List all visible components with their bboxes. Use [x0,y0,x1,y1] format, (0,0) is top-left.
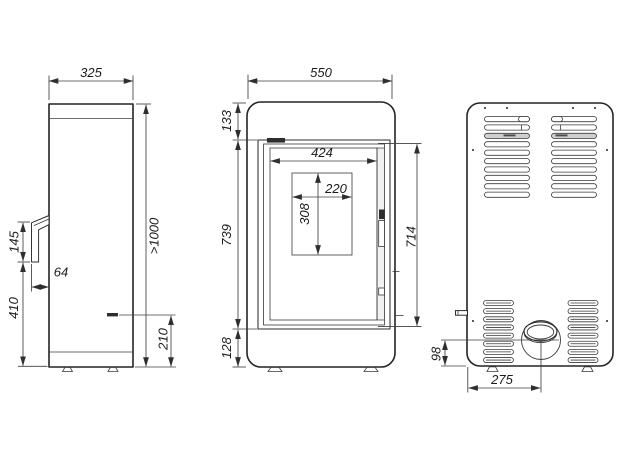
dim-handle-to-floor-label: 410 [6,296,21,318]
dim-glass-height-right-label: 714 [404,226,419,248]
foot [63,367,73,371]
back-view: 98 275 [429,103,614,393]
dim-glass-width-label: 424 [311,145,333,160]
dim-min-clearance-label: >1000 [147,217,162,254]
foot [268,367,282,371]
door-hinge [379,288,385,295]
dim-side-width-label: 325 [80,65,102,80]
rear-outlet-mark [107,313,118,316]
door-glass [270,148,377,320]
foot [364,367,378,371]
door-lock [379,210,385,220]
dim-flue-height-label: 98 [429,346,444,361]
dim-glass-to-floor: 128 [219,330,246,367]
dim-window-width-label: 220 [324,181,347,196]
dim-window-height: 308 [297,174,318,255]
dim-outlet-height: 210 [119,315,176,367]
front-view: 550 133 739 128 424 220 [219,65,422,372]
side-stub-pipe [456,311,468,316]
foot [582,367,593,372]
dim-glass-to-floor-label: 128 [219,336,234,358]
dim-handle-depth: 64 [32,264,69,292]
door-handle-front [379,221,385,247]
dim-window-width: 220 [293,181,352,197]
side-view: 325 >1000 210 145 410 [6,65,176,372]
dim-window-height-label: 308 [297,202,312,224]
technical-drawing: 325 >1000 210 145 410 [0,0,624,460]
dim-front-width-label: 550 [310,65,332,80]
dim-glass-width: 424 [271,145,377,161]
dim-min-clearance: >1000 [136,104,162,367]
foot [487,367,498,372]
dim-front-width: 550 [248,65,392,99]
dim-top-to-glass: 133 [219,103,257,140]
screws [472,107,608,322]
door-frame [258,140,390,329]
dim-flue-offset-label: 275 [490,372,513,387]
dim-side-width: 325 [49,65,133,100]
dim-handle-length: 145 [7,222,31,262]
dim-glass-height-left: 739 [219,141,257,329]
dim-handle-length-label: 145 [7,230,22,252]
door-inner-frame [264,144,385,325]
stove-body-side [49,104,133,367]
vent-grid-top [485,117,597,198]
dim-outlet-height-label: 210 [156,327,171,350]
dim-handle-to-floor: 410 [6,263,48,367]
foot [108,367,118,371]
dim-handle-depth-label: 64 [54,265,68,280]
nameplate [267,138,285,143]
dim-glass-height-left-label: 739 [219,224,234,246]
dim-top-to-glass-label: 133 [219,109,234,131]
